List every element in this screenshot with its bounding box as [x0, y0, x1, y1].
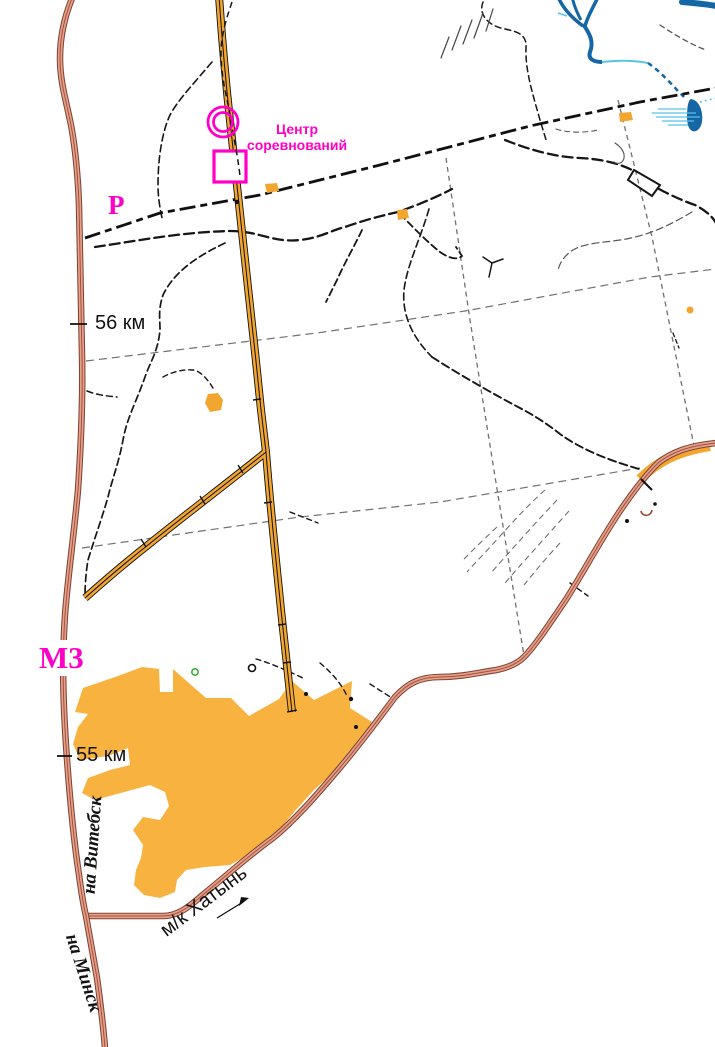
river-main: [583, 24, 602, 62]
competition-center-label: Центр соревнований: [227, 121, 367, 153]
forest-grid-lines: [82, 100, 715, 656]
point-dots: [235, 200, 657, 729]
lake-corner: [682, 2, 715, 6]
clearing-hatching: [441, 9, 493, 58]
road-map: Центр соревнований Р М3 56 км 55 км на В…: [0, 0, 715, 1047]
intermittent-stream: [648, 63, 684, 97]
competition-center-line2: соревнований: [227, 137, 367, 153]
pond: [687, 99, 702, 131]
competition-center-line1: Центр: [227, 121, 367, 137]
road-label-p: Р: [108, 190, 125, 221]
water-features: [558, 0, 715, 131]
km-56-label: 56 км: [95, 312, 145, 335]
gravel-roads-orange: [85, 0, 297, 712]
green-circle-symbol: [192, 669, 198, 675]
km-55-label: 55 км: [76, 744, 126, 767]
river-branch: [585, 0, 598, 26]
spring-symbol: [641, 510, 652, 515]
contour-lines: [463, 490, 569, 585]
orange-patches: [205, 112, 710, 479]
stream: [602, 61, 648, 63]
trail-fork-loop: [628, 170, 660, 196]
start-square-symbol: [214, 151, 246, 182]
road-label-m3: М3: [36, 640, 87, 676]
river-branch: [558, 0, 583, 26]
small-stream-mark: [558, 13, 567, 16]
open-circle-symbol: [249, 665, 256, 672]
map-canvas: [0, 0, 715, 1047]
marsh-edge-dotted: [700, 98, 715, 102]
